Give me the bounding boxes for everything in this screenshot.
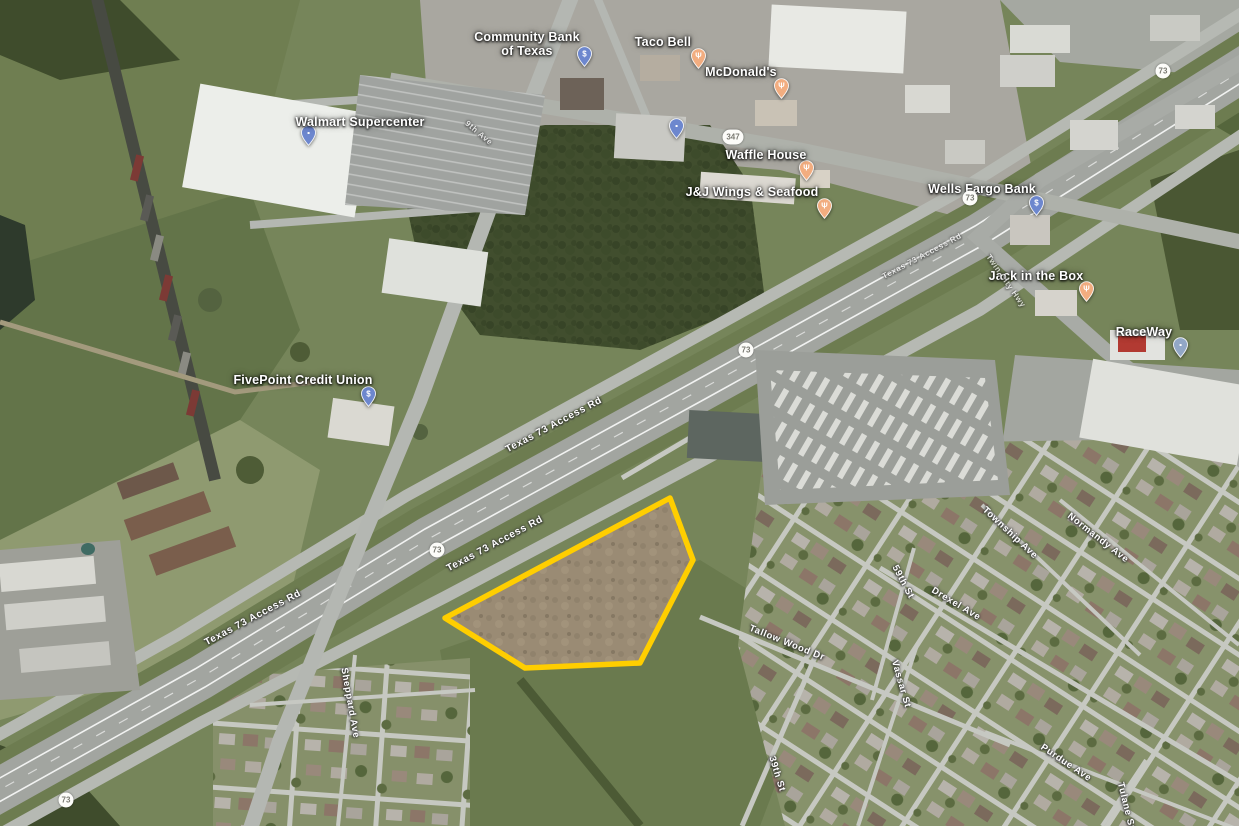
mcdonalds-label[interactable]: McDonald's xyxy=(705,65,777,79)
jj-wings-and-seafood-label[interactable]: J&J Wings & Seafood xyxy=(686,185,819,199)
road-label-sheppard-ave: Sheppard Ave xyxy=(338,667,361,739)
taco-bell-label[interactable]: Taco Bell xyxy=(635,35,691,49)
road-label-drexel-ave: Drexel Ave xyxy=(929,585,982,623)
road-label-tallow-wood-dr: Tallow Wood Dr xyxy=(748,623,827,663)
svg-text:$: $ xyxy=(582,50,587,59)
jj-wings-and-seafood-label-line: J&J Wings & Seafood xyxy=(686,185,819,199)
route-shield-73: 73 xyxy=(963,191,978,206)
fivepoint-credit-union-label-line: FivePoint Credit Union xyxy=(233,373,372,387)
road-label-9th-ave: 9th Ave xyxy=(463,119,494,147)
svg-text:Ψ: Ψ xyxy=(778,82,785,91)
taco-bell-label-line: Taco Bell xyxy=(635,35,691,49)
svg-text:Ψ: Ψ xyxy=(821,202,828,211)
map-label-layer: $Community Bankof TexasΨTaco Bell▪Walmar… xyxy=(0,0,1239,826)
road-label-texas-73-access-rd: Texas 73 Access Rd xyxy=(445,514,545,574)
svg-text:▪: ▪ xyxy=(675,122,678,131)
road-label-texas-73-access-rd: Texas 73 Access Rd xyxy=(203,588,303,648)
road-label-township-ave: Township Ave xyxy=(980,505,1040,562)
community-bank-of-texas-label-line: Community Bank xyxy=(474,30,580,44)
svg-text:$: $ xyxy=(1034,199,1039,208)
route-shield-73: 73 xyxy=(59,793,74,808)
community-bank-of-texas-label-line: of Texas xyxy=(474,44,580,58)
wells-fargo-bank-label[interactable]: Wells Fargo Bank xyxy=(928,182,1036,196)
svg-text:Ψ: Ψ xyxy=(803,164,810,173)
satellite-map-canvas[interactable]: $Community Bankof TexasΨTaco Bell▪Walmar… xyxy=(0,0,1239,826)
route-shield-73: 73 xyxy=(430,543,445,558)
road-label-normandy-ave: Normandy Ave xyxy=(1065,511,1131,566)
road-label-purdue-ave: Purdue Ave xyxy=(1038,742,1093,784)
walmart-supercenter-label-line: Walmart Supercenter xyxy=(295,115,424,129)
road-label-59th-st: 59th St xyxy=(890,563,917,600)
svg-text:▪: ▪ xyxy=(307,129,310,138)
mcdonalds-label-line: McDonald's xyxy=(705,65,777,79)
svg-text:Ψ: Ψ xyxy=(1083,285,1090,294)
route-shield-73: 73 xyxy=(739,343,754,358)
road-label-tulane-st: Tulane St xyxy=(1115,781,1137,826)
raceway-label[interactable]: RaceWay xyxy=(1116,325,1173,339)
route-shield-73: 73 xyxy=(1156,64,1171,79)
road-label-39th-st: 39th St xyxy=(766,755,787,793)
route-shield-347: 347 xyxy=(723,130,744,145)
road-label-vassar-st: Vassar St xyxy=(889,659,913,709)
road-label-texas-73-access-rd: Texas 73 Access Rd xyxy=(504,395,604,455)
waffle-house-label-line: Waffle House xyxy=(725,148,806,162)
svg-text:Ψ: Ψ xyxy=(695,52,702,61)
svg-text:$: $ xyxy=(366,390,371,399)
walmart-supercenter-label[interactable]: Walmart Supercenter xyxy=(295,115,424,129)
waffle-house-label[interactable]: Waffle House xyxy=(725,148,806,162)
road-label-texas-73-access-rd: Texas 73 Access Rd xyxy=(881,231,964,281)
svg-text:▪: ▪ xyxy=(1179,341,1182,350)
wells-fargo-bank-label-line: Wells Fargo Bank xyxy=(928,182,1036,196)
raceway-label-line: RaceWay xyxy=(1116,325,1173,339)
fivepoint-credit-union-label[interactable]: FivePoint Credit Union xyxy=(233,373,372,387)
community-bank-of-texas-label[interactable]: Community Bankof Texas xyxy=(474,30,580,58)
